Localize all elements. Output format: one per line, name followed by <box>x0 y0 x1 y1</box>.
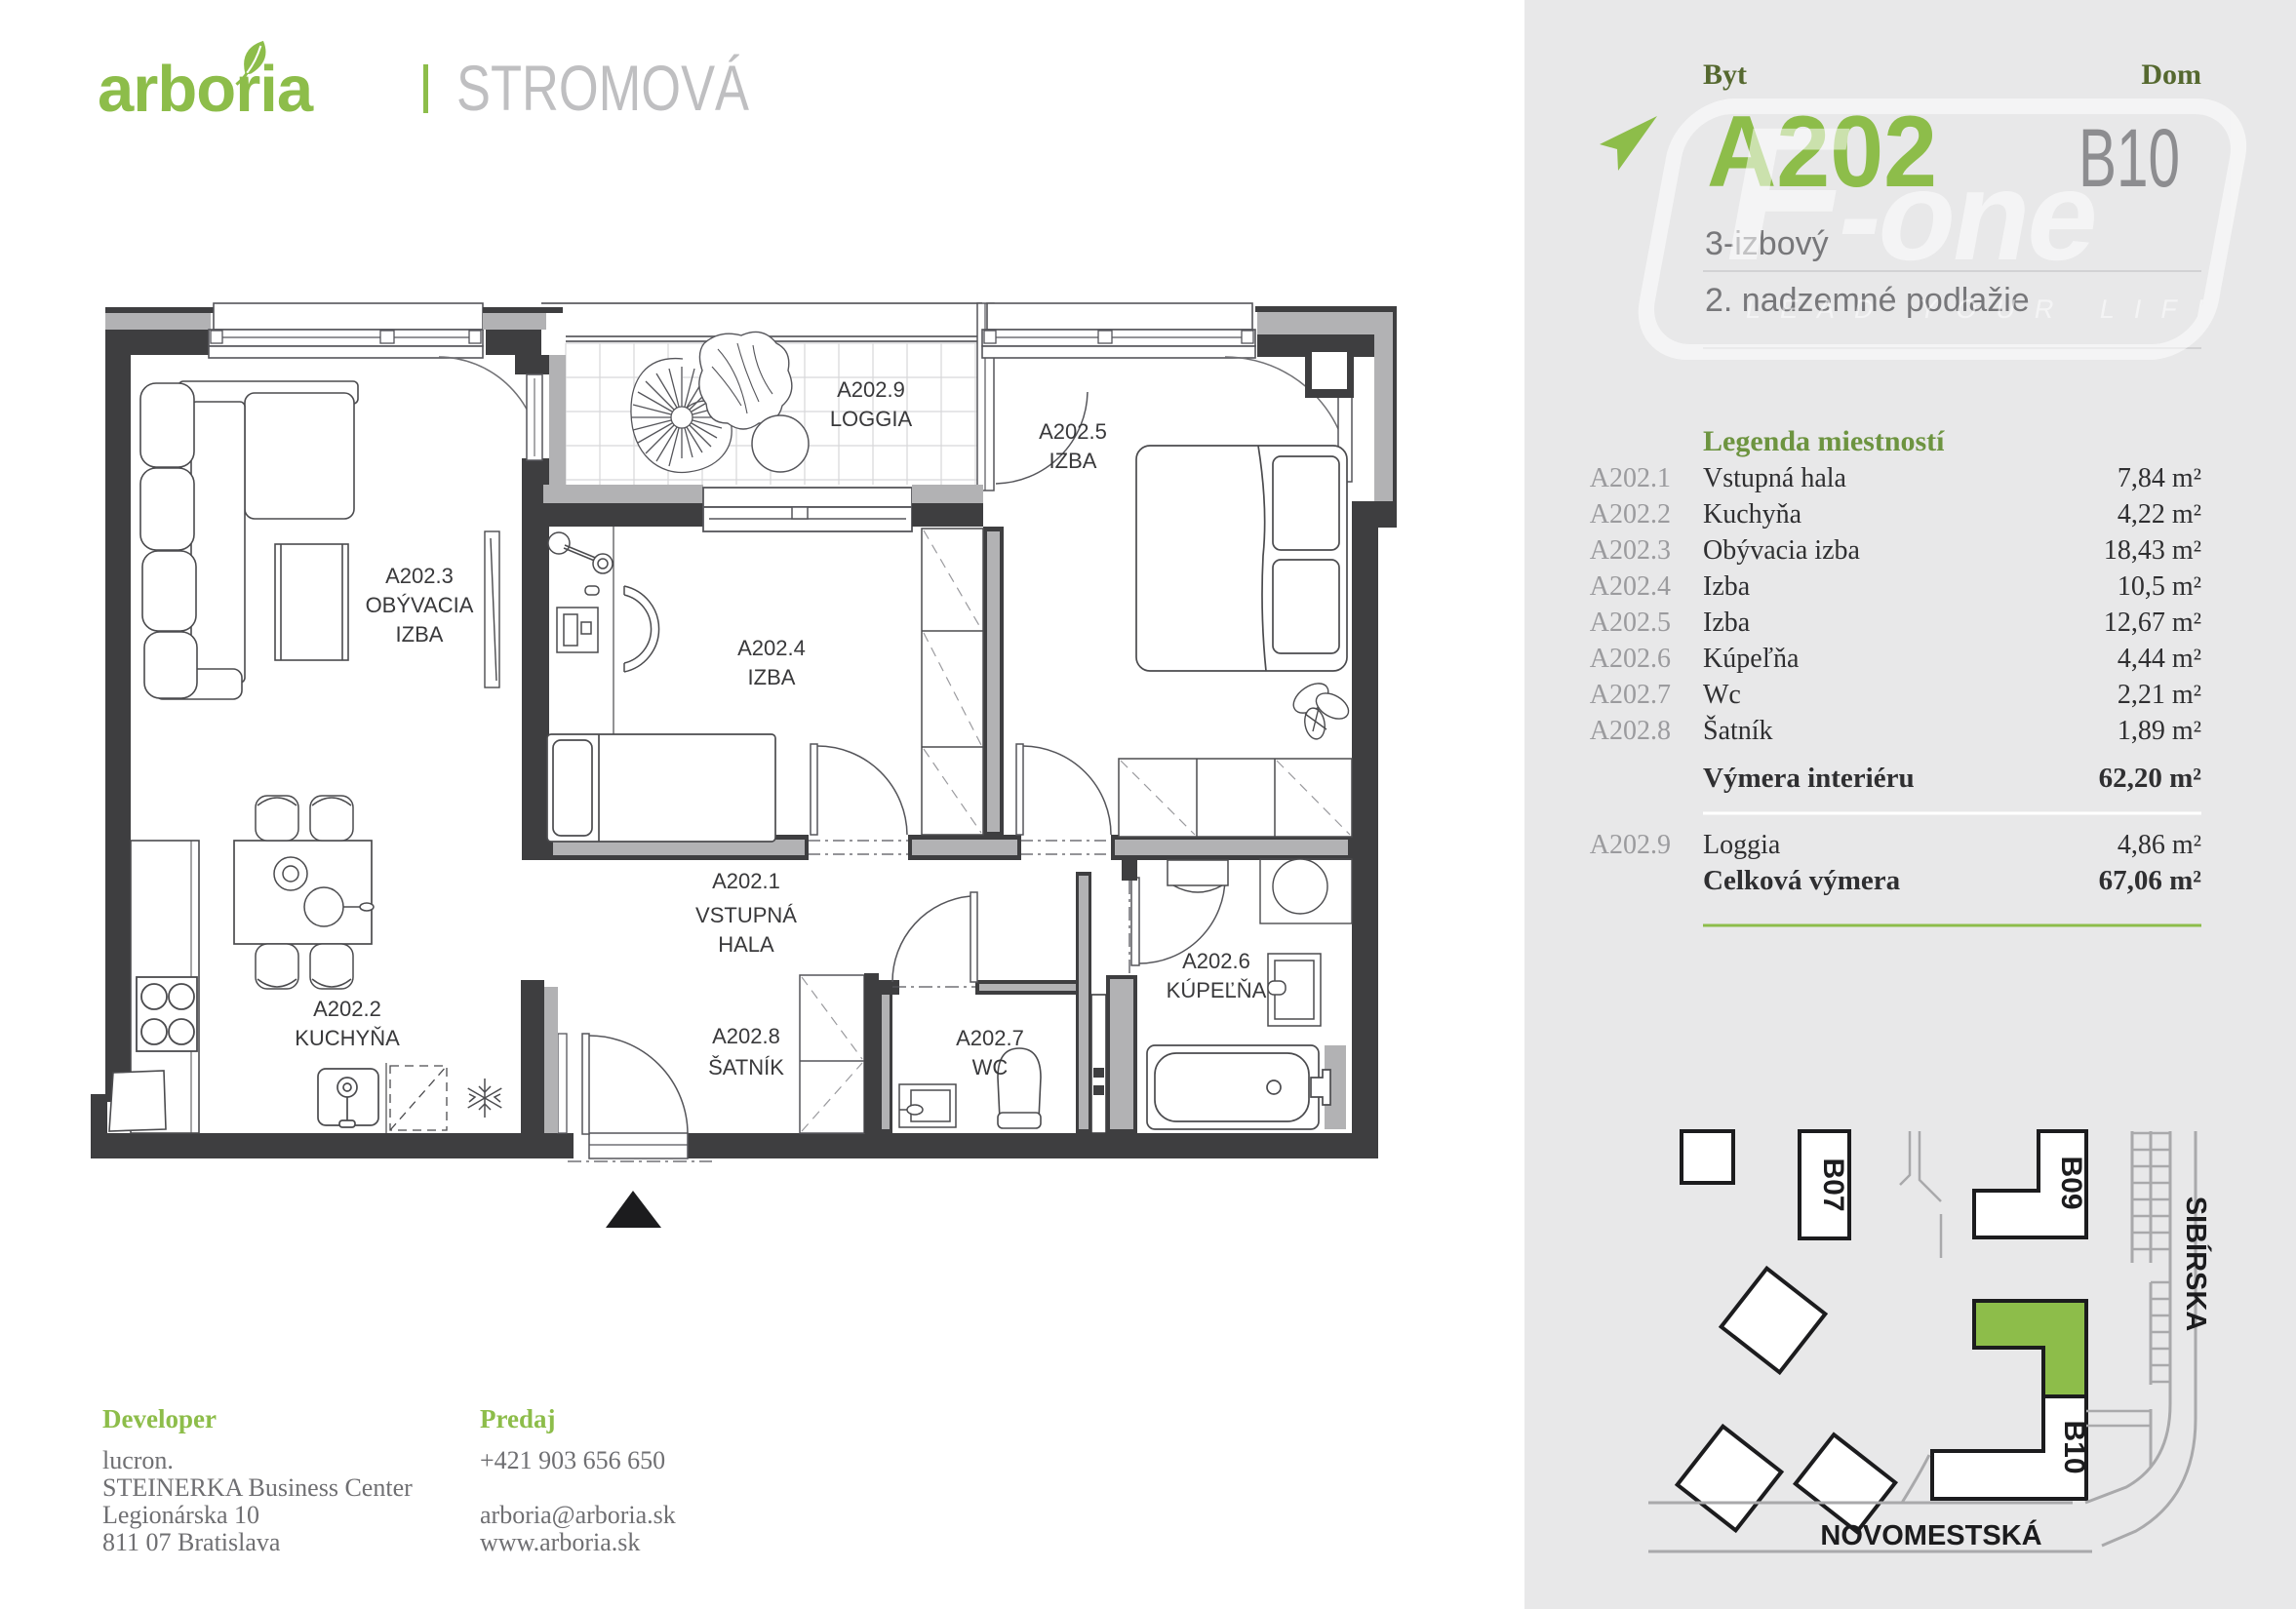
svg-text:Obývacia izba: Obývacia izba <box>1703 535 1860 566</box>
svg-text:A202.2: A202.2 <box>313 997 381 1021</box>
svg-text:A202.3: A202.3 <box>385 564 454 588</box>
svg-text:LOGGIA: LOGGIA <box>830 407 913 431</box>
svg-text:A202.4: A202.4 <box>737 636 806 660</box>
svg-text:Kúpeľňa: Kúpeľňa <box>1703 644 1800 674</box>
svg-text:STEINERKA Business Center: STEINERKA Business Center <box>102 1473 413 1502</box>
svg-text:A202.8: A202.8 <box>712 1024 780 1048</box>
svg-text:IZBA: IZBA <box>1049 449 1097 473</box>
svg-text:B07: B07 <box>1817 1158 1849 1211</box>
svg-text:Dom: Dom <box>2141 59 2201 91</box>
svg-text:A202.6: A202.6 <box>1182 949 1250 973</box>
svg-text:Vstupná hala: Vstupná hala <box>1703 463 1847 493</box>
svg-text:A202.2: A202.2 <box>1590 499 1671 530</box>
svg-text:WC: WC <box>972 1055 1009 1079</box>
svg-text:KUCHYŇA: KUCHYŇA <box>295 1026 400 1050</box>
svg-text:Loggia: Loggia <box>1703 830 1781 860</box>
svg-text:A202.7: A202.7 <box>1590 680 1671 710</box>
svg-text:Predaj: Predaj <box>480 1404 555 1433</box>
svg-text:A202.3: A202.3 <box>1590 535 1671 566</box>
svg-text:A202.7: A202.7 <box>956 1026 1024 1050</box>
svg-text:arboria@arboria.sk: arboria@arboria.sk <box>480 1501 676 1529</box>
svg-text:A202.9: A202.9 <box>1590 830 1671 860</box>
svg-text:Byt: Byt <box>1703 59 1747 91</box>
svg-text:A202.5: A202.5 <box>1039 419 1107 444</box>
svg-text:SIBÍRSKA: SIBÍRSKA <box>2180 1197 2213 1332</box>
svg-text:KÚPEĽŇA: KÚPEĽŇA <box>1167 978 1267 1002</box>
svg-text:B10: B10 <box>2058 1420 2090 1473</box>
svg-text:1,89 m²: 1,89 m² <box>2118 716 2201 746</box>
svg-text:lucron.: lucron. <box>102 1446 174 1474</box>
svg-text:Legenda miestností: Legenda miestností <box>1703 425 1945 457</box>
svg-text:Developer: Developer <box>102 1404 217 1433</box>
svg-text:12,67 m²: 12,67 m² <box>2104 608 2201 638</box>
svg-text:67,06 m²: 67,06 m² <box>2099 865 2202 896</box>
svg-text:VSTUPNÁ: VSTUPNÁ <box>695 903 797 927</box>
svg-text:+421 903 656 650: +421 903 656 650 <box>480 1446 665 1474</box>
svg-text:A202.5: A202.5 <box>1590 608 1671 638</box>
svg-text:Wc: Wc <box>1703 680 1741 710</box>
svg-text:4,22 m²: 4,22 m² <box>2118 499 2201 530</box>
svg-text:Výmera interiéru: Výmera interiéru <box>1703 763 1915 794</box>
svg-text:LEAD YOUR LIFE: LEAD YOUR LIFE <box>1743 294 2237 324</box>
svg-text:A202.8: A202.8 <box>1590 716 1671 746</box>
svg-text:STROMOVÁ: STROMOVÁ <box>456 52 749 124</box>
svg-text:B09: B09 <box>2055 1156 2087 1209</box>
svg-text:4,86 m²: 4,86 m² <box>2118 830 2201 860</box>
svg-text:OBÝVACIA: OBÝVACIA <box>366 593 474 617</box>
svg-text:Šatník: Šatník <box>1703 716 1773 746</box>
svg-text:10,5 m²: 10,5 m² <box>2118 571 2201 602</box>
svg-text:IZBA: IZBA <box>748 665 796 689</box>
svg-text:A202.6: A202.6 <box>1590 644 1671 674</box>
svg-text:62,20 m²: 62,20 m² <box>2099 763 2202 794</box>
svg-text:4,44 m²: 4,44 m² <box>2118 644 2201 674</box>
svg-text:Celková výmera: Celková výmera <box>1703 865 1901 896</box>
svg-text:arboria: arboria <box>98 53 314 126</box>
svg-text:18,43 m²: 18,43 m² <box>2104 535 2201 566</box>
svg-text:ŠATNÍK: ŠATNÍK <box>708 1055 784 1079</box>
svg-text:A202.4: A202.4 <box>1590 571 1671 602</box>
svg-text:www.arboria.sk: www.arboria.sk <box>480 1528 640 1556</box>
svg-text:Kuchyňa: Kuchyňa <box>1703 499 1802 530</box>
svg-text:A202.1: A202.1 <box>712 869 780 893</box>
svg-text:811 07 Bratislava: 811 07 Bratislava <box>102 1528 281 1556</box>
svg-text:7,84 m²: 7,84 m² <box>2118 463 2201 493</box>
svg-text:A202.1: A202.1 <box>1590 463 1671 493</box>
svg-text:Izba: Izba <box>1703 571 1751 602</box>
svg-text:IZBA: IZBA <box>396 622 444 647</box>
svg-text:Legionárska 10: Legionárska 10 <box>102 1501 259 1529</box>
svg-text:Izba: Izba <box>1703 608 1751 638</box>
svg-text:NOVOMESTSKÁ: NOVOMESTSKÁ <box>1820 1518 2041 1551</box>
svg-text:HALA: HALA <box>718 932 774 957</box>
svg-text:A202.9: A202.9 <box>837 377 905 402</box>
svg-text:2,21 m²: 2,21 m² <box>2118 680 2201 710</box>
